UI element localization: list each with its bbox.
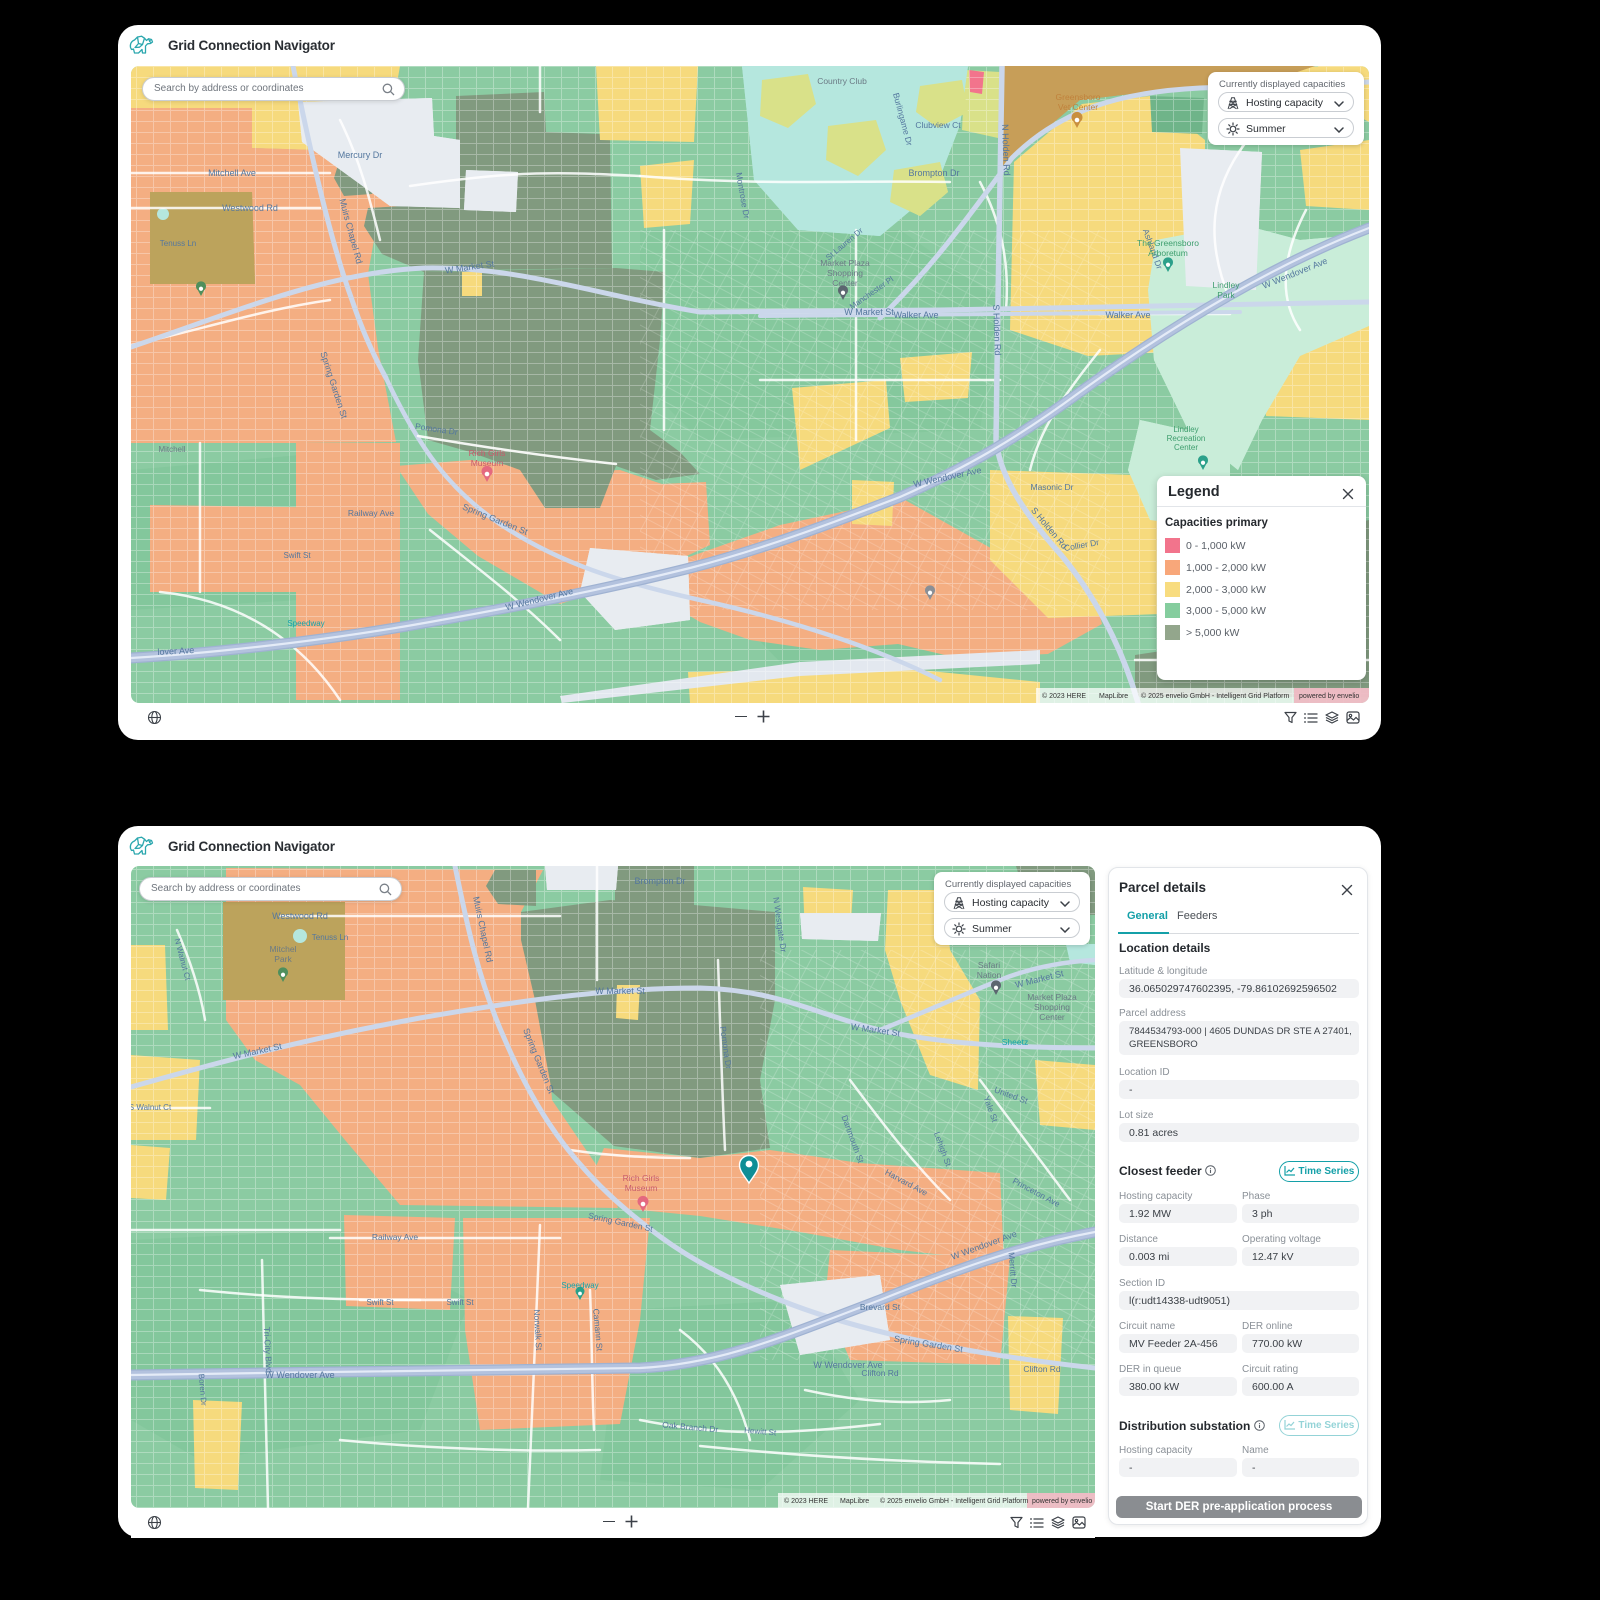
svg-text:© 2025 envelio GmbH - Intellig: © 2025 envelio GmbH - Intelligent Grid P… (880, 1497, 1029, 1505)
svg-text:Westwood Rd: Westwood Rd (222, 203, 278, 213)
svg-text:Nation: Nation (977, 970, 1002, 980)
svg-text:Country Club: Country Club (817, 76, 867, 86)
svg-text:Safari: Safari (978, 960, 1000, 970)
svg-text:Speedway: Speedway (287, 619, 324, 628)
svg-text:S Holden Rd: S Holden Rd (991, 304, 1003, 355)
svg-text:Mercury Dr: Mercury Dr (338, 150, 383, 160)
svg-text:Museum: Museum (625, 1183, 658, 1193)
svg-text:Swift St: Swift St (283, 551, 311, 560)
svg-text:© 2025 envelio GmbH - Intellig: © 2025 envelio GmbH - Intelligent Grid P… (1141, 692, 1290, 700)
svg-text:Railway Ave: Railway Ave (372, 1232, 418, 1242)
svg-text:Walker Ave: Walker Ave (1105, 310, 1150, 320)
svg-text:Arboretum: Arboretum (1148, 248, 1188, 258)
svg-text:Tenuss Ln: Tenuss Ln (312, 933, 348, 942)
svg-text:Swift St: Swift St (366, 1298, 394, 1307)
svg-text:Market Plaza: Market Plaza (1027, 992, 1077, 1002)
svg-text:Swift St: Swift St (446, 1298, 474, 1307)
svg-text:Rich Girls: Rich Girls (623, 1173, 660, 1183)
svg-text:© 2023 HERE: © 2023 HERE (784, 1497, 828, 1505)
svg-text:Greensboro: Greensboro (1056, 92, 1101, 102)
svg-text:Lindley: Lindley (1213, 280, 1241, 290)
svg-text:Rich Girls: Rich Girls (469, 448, 506, 458)
svg-text:Clubview Ct: Clubview Ct (915, 120, 961, 130)
svg-text:Brevard St: Brevard St (860, 1302, 901, 1312)
svg-text:Market Plaza: Market Plaza (820, 258, 870, 268)
svg-text:Park: Park (1217, 290, 1235, 300)
svg-text:powered by envelio: powered by envelio (1299, 693, 1359, 700)
svg-text:Brompton Dr: Brompton Dr (634, 876, 685, 886)
svg-text:Brompton Dr: Brompton Dr (908, 168, 959, 178)
svg-text:powered by envelio: powered by envelio (1032, 1498, 1092, 1505)
svg-text:Shopping: Shopping (1034, 1002, 1070, 1012)
svg-text:Vet Center: Vet Center (1058, 102, 1098, 112)
svg-text:S Walnut Ct: S Walnut Ct (131, 1103, 172, 1112)
svg-text:Mitchell: Mitchell (158, 445, 185, 454)
svg-text:Walker Ave: Walker Ave (893, 310, 938, 320)
svg-text:MapLibre: MapLibre (840, 1498, 869, 1505)
svg-text:Masonic Dr: Masonic Dr (1031, 482, 1074, 492)
svg-text:Clifton Rd: Clifton Rd (1023, 1364, 1061, 1374)
svg-text:N Holden Rd: N Holden Rd (1000, 124, 1012, 176)
svg-text:Tenuss Ln: Tenuss Ln (160, 239, 196, 248)
svg-text:Clifton Rd: Clifton Rd (861, 1368, 899, 1378)
svg-text:Recreation: Recreation (1167, 434, 1206, 443)
svg-text:W Wendover Ave: W Wendover Ave (265, 1370, 334, 1380)
svg-text:MapLibre: MapLibre (1099, 693, 1128, 700)
svg-text:W Market St: W Market St (595, 986, 645, 996)
svg-text:Center: Center (1039, 1012, 1065, 1022)
svg-text:Park: Park (274, 954, 292, 964)
svg-text:© 2023 HERE: © 2023 HERE (1042, 692, 1086, 700)
svg-text:Mitchell Ave: Mitchell Ave (208, 168, 256, 178)
svg-text:lover Ave: lover Ave (157, 645, 194, 657)
svg-text:Westwood Rd: Westwood Rd (272, 911, 328, 921)
svg-text:Lindley: Lindley (1173, 425, 1198, 434)
svg-text:Mitchel: Mitchel (270, 944, 297, 954)
svg-text:Sheetz: Sheetz (1002, 1037, 1028, 1047)
svg-text:The Greensboro: The Greensboro (1137, 238, 1199, 248)
svg-text:Railway Ave: Railway Ave (348, 508, 394, 518)
svg-text:Shopping: Shopping (827, 268, 863, 278)
svg-text:Center: Center (1174, 443, 1198, 452)
